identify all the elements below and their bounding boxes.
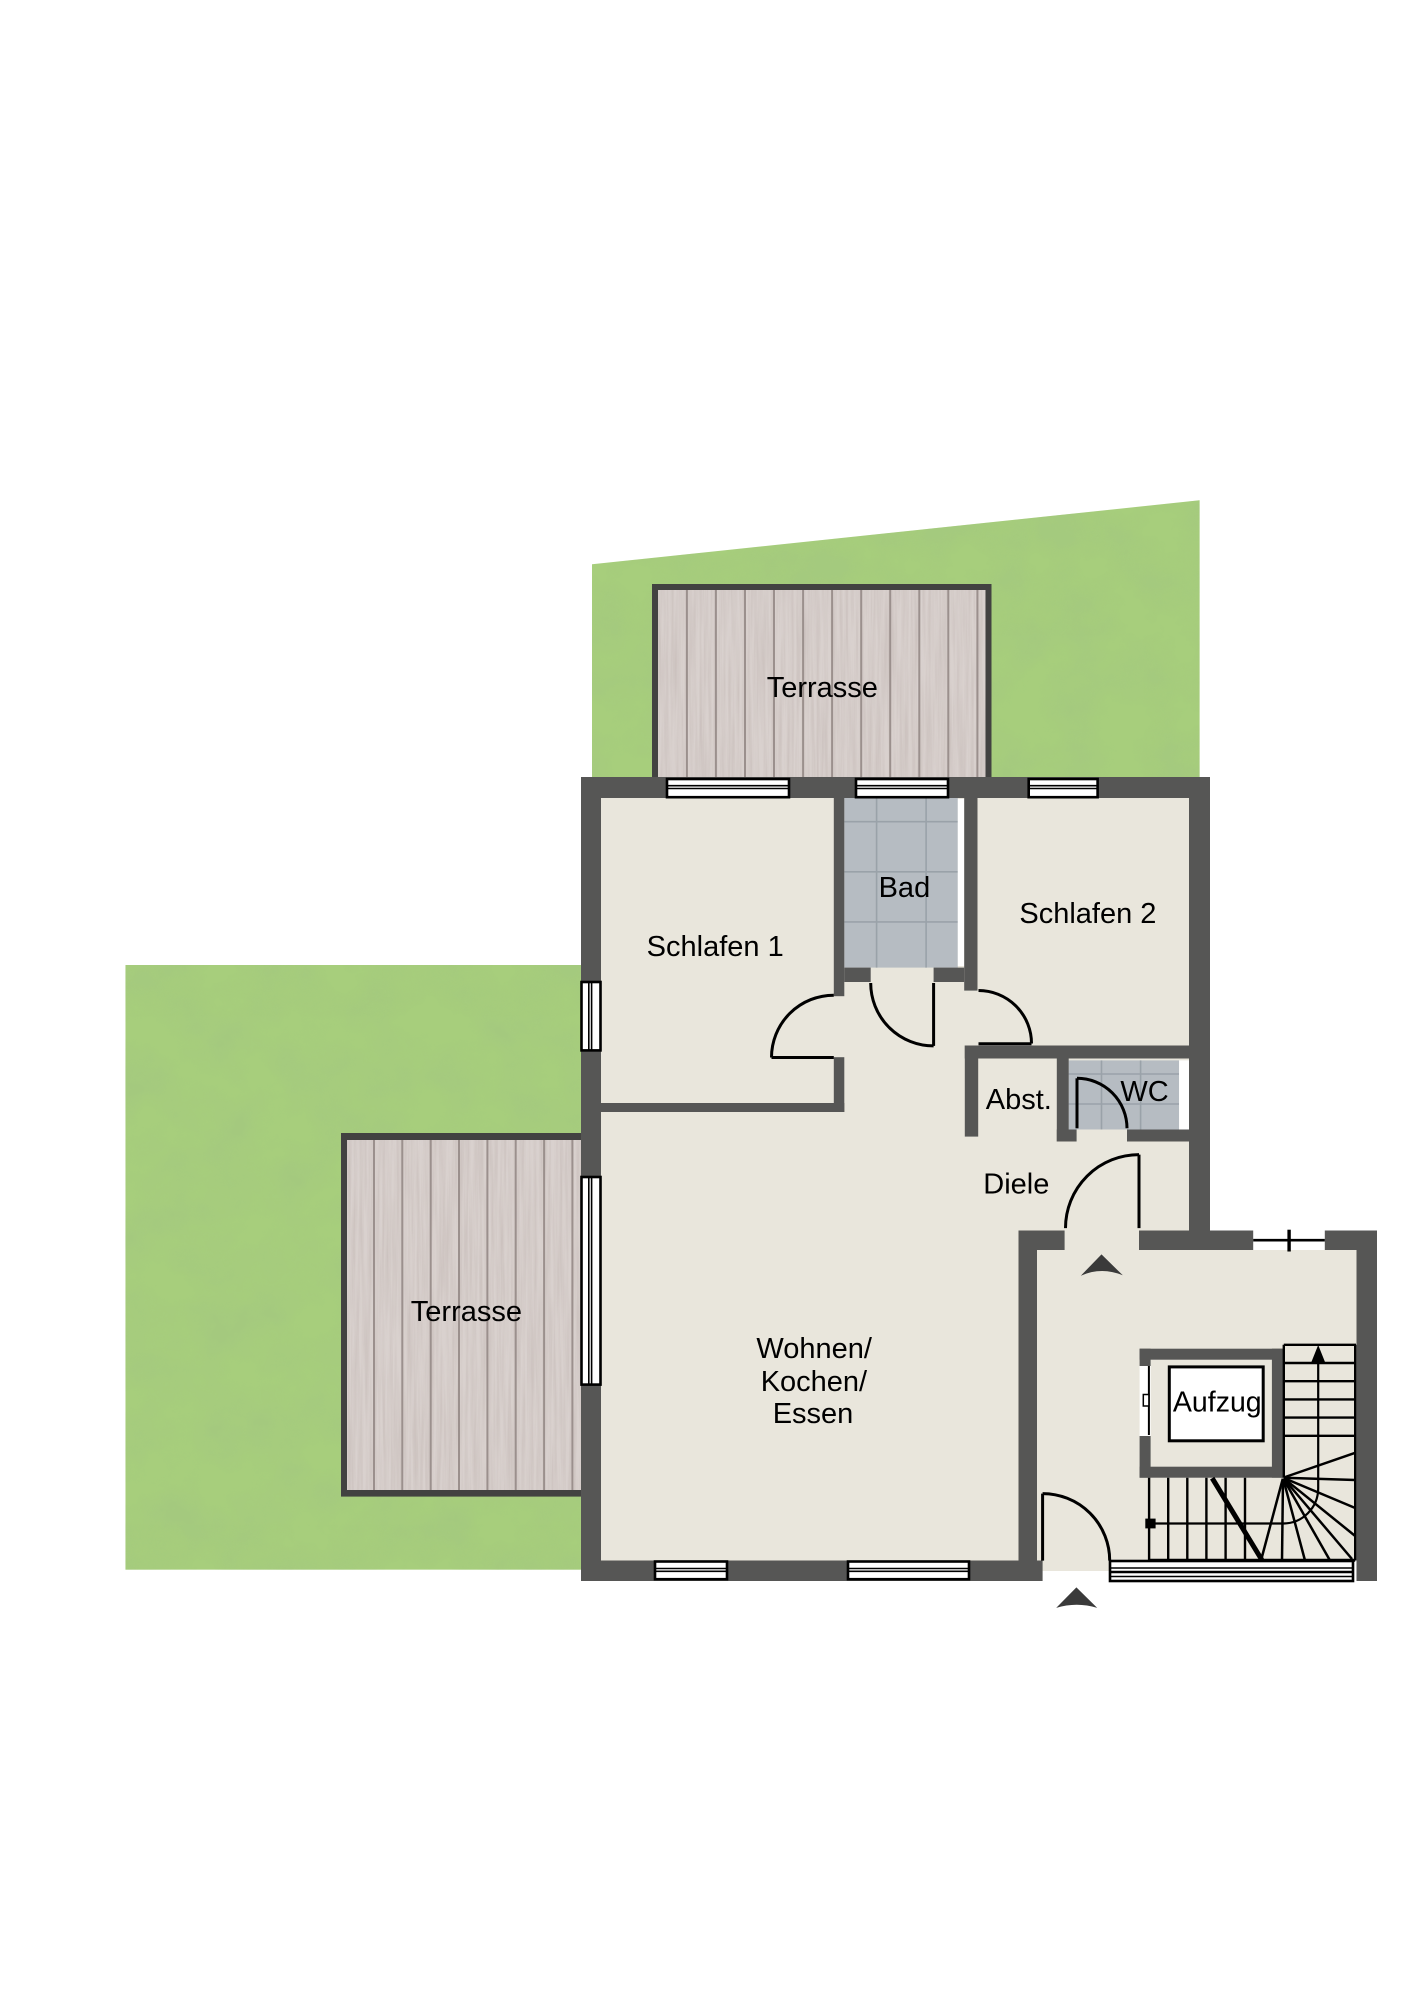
svg-text:Wohnen/: Wohnen/ [756,1333,872,1365]
svg-text:WC: WC [1120,1076,1168,1108]
svg-text:Schlafen 1: Schlafen 1 [647,931,784,963]
svg-text:Abst.: Abst. [986,1084,1052,1116]
svg-text:Kochen/: Kochen/ [761,1366,868,1398]
svg-text:Bad: Bad [879,872,931,904]
svg-text:Terrasse: Terrasse [767,672,878,704]
svg-text:Diele: Diele [983,1169,1049,1201]
svg-text:Terrasse: Terrasse [411,1296,522,1328]
svg-text:Schlafen 2: Schlafen 2 [1019,898,1156,930]
svg-text:Aufzug: Aufzug [1173,1387,1262,1419]
svg-text:Essen: Essen [773,1398,854,1430]
